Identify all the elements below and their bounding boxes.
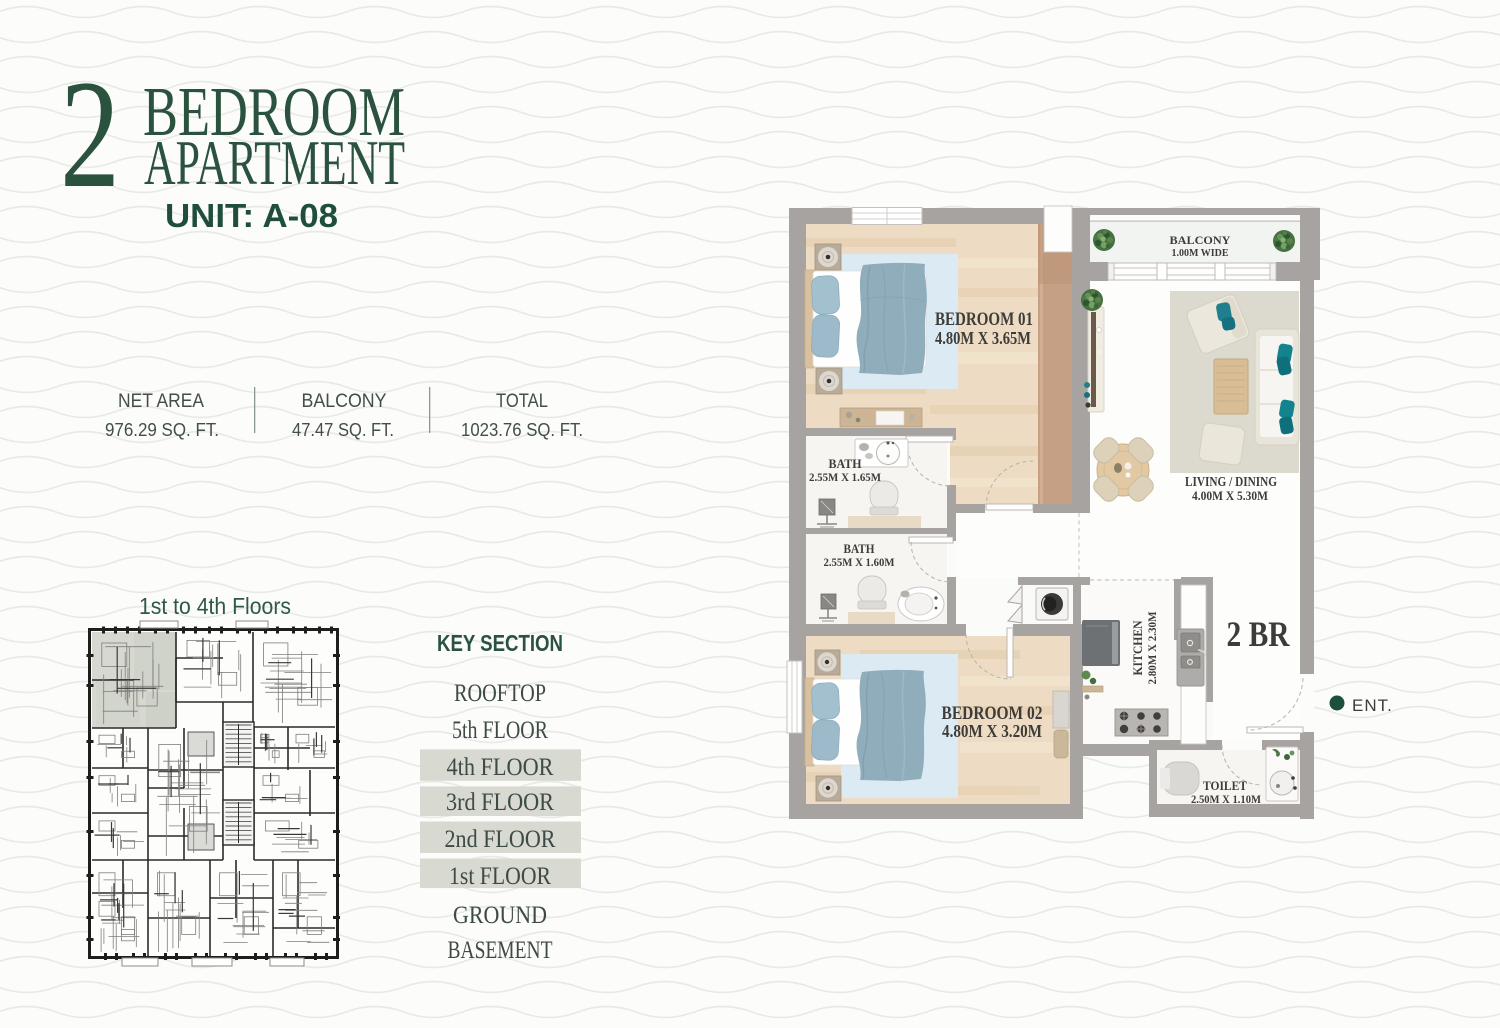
svg-text:2 BR: 2 BR (1227, 614, 1291, 654)
svg-text:47.47 SQ. FT.: 47.47 SQ. FT. (292, 420, 394, 440)
svg-text:BEDROOM 01: BEDROOM 01 (935, 309, 1033, 330)
svg-text:KITCHEN: KITCHEN (1130, 620, 1145, 676)
svg-text:ROOFTOP: ROOFTOP (454, 680, 546, 707)
svg-text:4th FLOOR: 4th FLOOR (447, 754, 554, 781)
svg-text:BALCONY: BALCONY (302, 391, 387, 412)
svg-text:2.80M X 2.30M: 2.80M X 2.30M (1145, 612, 1159, 685)
svg-text:3rd FLOOR: 3rd FLOOR (446, 789, 554, 816)
svg-text:1.00M WIDE: 1.00M WIDE (1172, 247, 1229, 259)
svg-text:KEY SECTION: KEY SECTION (437, 630, 563, 656)
svg-text:4.80M X 3.20M: 4.80M X 3.20M (942, 721, 1042, 741)
svg-text:ENT.: ENT. (1352, 696, 1393, 715)
svg-text:TOILET: TOILET (1203, 778, 1247, 793)
svg-text:BATH: BATH (829, 456, 862, 471)
svg-text:GROUND: GROUND (453, 902, 547, 929)
svg-text:1st FLOOR: 1st FLOOR (449, 863, 551, 890)
svg-text:4.80M X 3.65M: 4.80M X 3.65M (935, 328, 1031, 348)
svg-text:BATH: BATH (844, 541, 875, 556)
svg-text:4.00M X 5.30M: 4.00M X 5.30M (1192, 488, 1268, 503)
svg-text:2nd FLOOR: 2nd FLOOR (445, 826, 556, 853)
svg-text:NET AREA: NET AREA (118, 391, 204, 412)
svg-text:1023.76 SQ. FT.: 1023.76 SQ. FT. (461, 420, 583, 440)
svg-text:BALCONY: BALCONY (1170, 233, 1231, 247)
svg-text:UNIT: A-08: UNIT: A-08 (165, 197, 338, 234)
svg-text:976.29 SQ. FT.: 976.29 SQ. FT. (105, 420, 219, 440)
svg-text:2: 2 (60, 48, 120, 220)
svg-text:1st to 4th Floors: 1st to 4th Floors (139, 593, 291, 619)
svg-text:2.50M X 1.10M: 2.50M X 1.10M (1191, 792, 1261, 806)
svg-text:BASEMENT: BASEMENT (448, 937, 553, 964)
svg-text:TOTAL: TOTAL (496, 391, 548, 412)
svg-text:APARTMENT: APARTMENT (144, 128, 405, 198)
svg-text:2.55M X 1.60M: 2.55M X 1.60M (824, 555, 895, 569)
svg-text:2.55M X 1.65M: 2.55M X 1.65M (809, 470, 881, 484)
svg-text:5th FLOOR: 5th FLOOR (452, 717, 548, 744)
